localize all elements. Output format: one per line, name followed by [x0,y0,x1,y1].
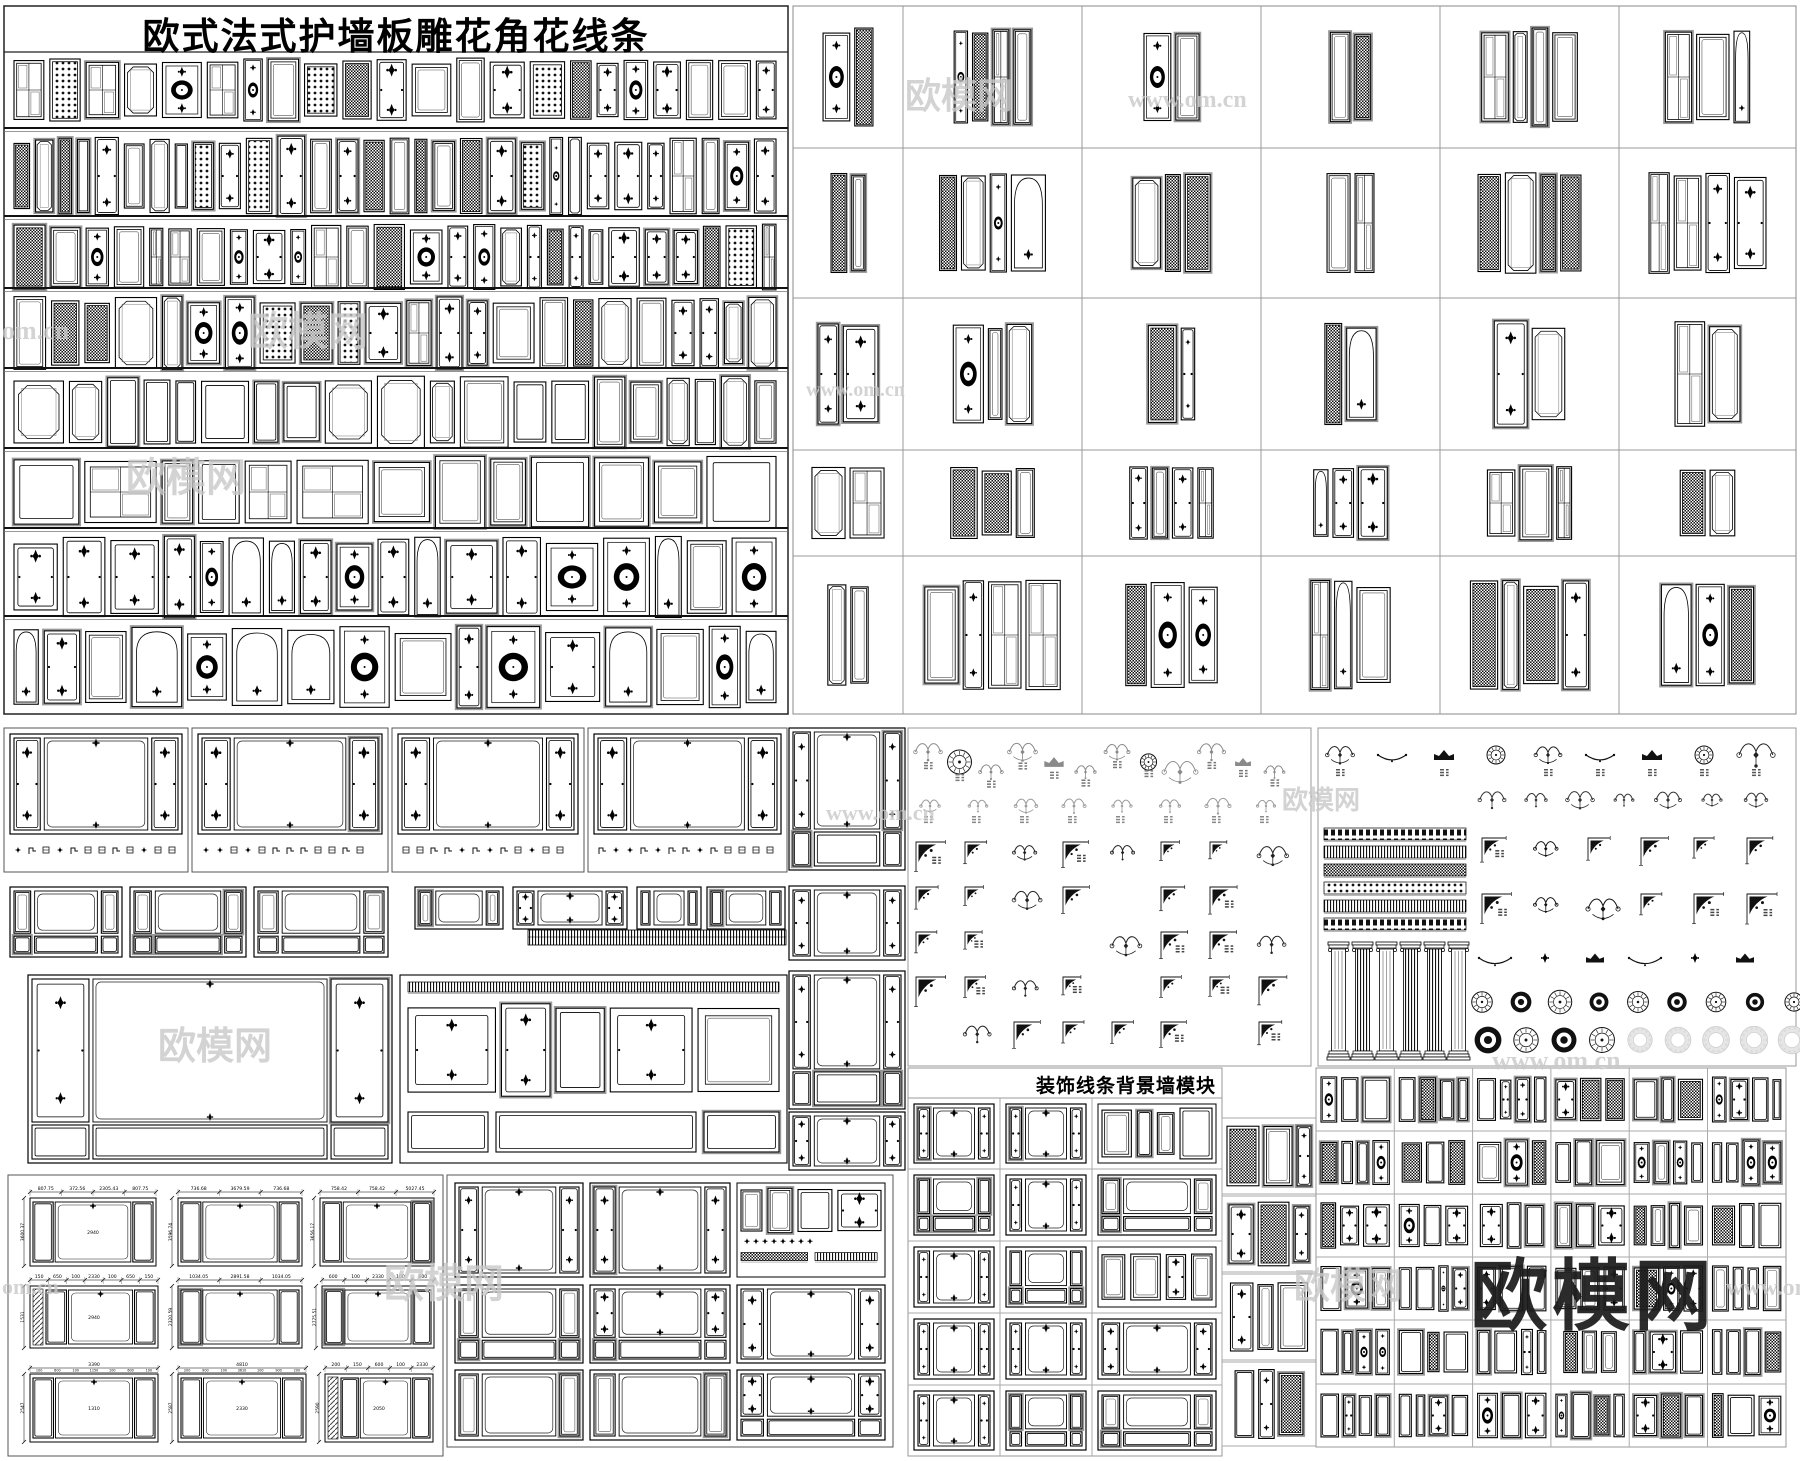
watermark-text: 欧模网 [248,312,368,352]
svg-text:1034.05: 1034.05 [272,1274,291,1280]
svg-text:1150: 1150 [90,1369,99,1373]
svg-text:600: 600 [375,1362,384,1368]
svg-text:2050: 2050 [373,1406,385,1412]
svg-text:2940: 2940 [88,1315,100,1321]
svg-text:2330: 2330 [416,1362,428,1368]
svg-text:1310: 1310 [88,1406,100,1412]
cad-sheet: 807.75372.562305.43807.753600.372940736.… [0,0,1800,1461]
svg-text:900: 900 [275,1369,281,1373]
svg-text:2330: 2330 [372,1274,384,1280]
svg-text:3679.59: 3679.59 [231,1186,250,1192]
svg-text:2547: 2547 [20,1402,26,1413]
svg-text:807.75: 807.75 [38,1186,54,1192]
svg-text:3390: 3390 [88,1362,100,1368]
svg-text:2891.58: 2891.58 [231,1274,250,1280]
cad-drawing-canvas: 807.75372.562305.43807.753600.372940736.… [0,0,1800,1461]
svg-text:3656.17: 3656.17 [310,1223,316,1241]
watermark-text: www.om [1726,1276,1800,1300]
svg-text:372.56: 372.56 [69,1186,85,1192]
svg-text:2330: 2330 [236,1406,248,1412]
svg-text:600: 600 [127,1369,133,1373]
svg-text:100: 100 [146,1369,152,1373]
svg-text:2590: 2590 [315,1402,321,1413]
svg-text:100: 100 [257,1369,263,1373]
svg-text:2940: 2940 [87,1230,99,1236]
svg-text:3596.74: 3596.74 [168,1223,174,1241]
svg-text:758.42: 758.42 [369,1186,385,1192]
watermark-text: www.om.cn [1492,1048,1621,1074]
svg-text:2320.59: 2320.59 [168,1308,174,1326]
svg-text:3610: 3610 [238,1369,247,1373]
svg-text:650: 650 [126,1274,135,1280]
sheet-title: 欧式法式护墙板雕花角花线条 [4,6,788,50]
watermark-text: 欧模网 [1294,1268,1402,1304]
svg-text:150: 150 [353,1362,362,1368]
svg-text:807.75: 807.75 [132,1186,148,1192]
watermark-text: 欧模网 [158,1028,272,1066]
svg-text:100: 100 [108,1274,117,1280]
svg-text:2775.51: 2775.51 [312,1308,318,1326]
svg-text:100: 100 [351,1274,360,1280]
watermark-text: om.cn [2,318,69,344]
svg-text:2305.43: 2305.43 [99,1186,118,1192]
svg-text:5027.45: 5027.45 [406,1186,425,1192]
watermark-text: 欧模网 [126,458,246,498]
svg-text:100: 100 [72,1369,78,1373]
svg-text:100: 100 [109,1369,115,1373]
watermark-text: www.om.cn [1128,88,1247,112]
svg-text:4810: 4810 [236,1362,248,1368]
svg-text:200: 200 [184,1369,190,1373]
svg-text:200: 200 [294,1369,300,1373]
svg-text:3600.37: 3600.37 [20,1223,26,1241]
svg-text:736.68: 736.68 [273,1186,289,1192]
svg-text:100: 100 [71,1274,80,1280]
svg-text:736.68: 736.68 [191,1186,207,1192]
svg-text:150: 150 [144,1274,153,1280]
svg-text:900: 900 [202,1369,208,1373]
watermark-text: www.om.cn [826,802,935,824]
svg-text:2587: 2587 [168,1402,174,1413]
svg-text:100: 100 [36,1369,42,1373]
watermark-text: 欧模网 [1282,788,1360,814]
watermark-big: 欧模网 [1470,1258,1716,1336]
svg-text:1034.05: 1034.05 [189,1274,208,1280]
svg-text:2330: 2330 [88,1274,100,1280]
svg-text:1531: 1531 [20,1311,26,1322]
svg-text:758.42: 758.42 [331,1186,347,1192]
decor-modules-title: 装饰线条背景墙模块 [908,1071,1216,1098]
watermark-text: om.cn [2,1276,59,1298]
svg-text:600: 600 [54,1369,60,1373]
watermark-text: www.om.cn [806,380,905,400]
svg-text:100: 100 [396,1362,405,1368]
svg-text:200: 200 [331,1362,340,1368]
watermark-text: 欧模网 [384,1264,504,1304]
svg-text:100: 100 [220,1369,226,1373]
watermark-text: 欧模网 [905,78,1013,114]
svg-text:600: 600 [329,1274,338,1280]
